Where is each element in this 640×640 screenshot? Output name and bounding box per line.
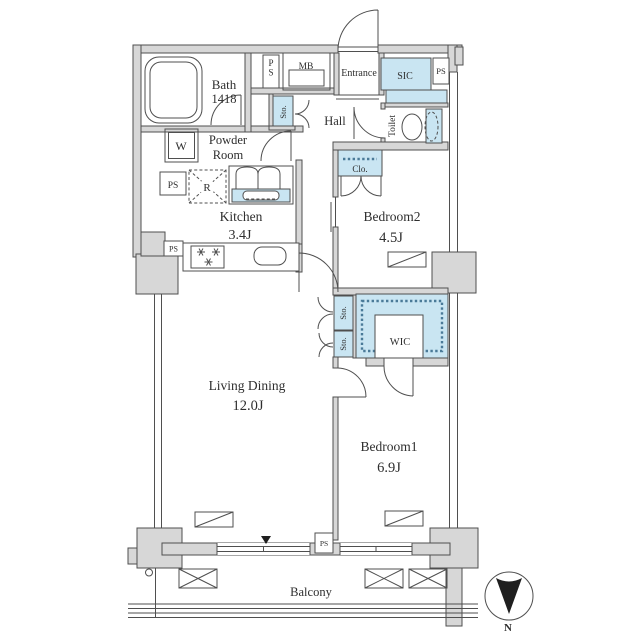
wall-bedroom1-north-b — [413, 358, 448, 366]
bedroom2-size-label: 4.5J — [379, 230, 403, 246]
wall-sto-nook-bottom — [269, 126, 295, 130]
bedroom1-size-label: 6.9J — [377, 460, 401, 476]
sto-stack-bifold-doors — [318, 297, 333, 357]
closet-label: Clo. — [352, 164, 367, 174]
ac-bedroom2-diagonal — [388, 252, 426, 267]
wall-bedroom1-north-a — [366, 358, 384, 366]
powder-room-door — [261, 131, 291, 161]
wall-right-lines — [450, 72, 458, 528]
floor-plan: N Bath 1418 PS MB Entrance SIC PS Sto. H… — [0, 0, 640, 640]
entrance-label: Entrance — [341, 68, 377, 79]
wall-kitchen-left-nook — [141, 232, 165, 256]
wall-hall-northwest — [251, 88, 336, 94]
wall-right-notch — [455, 47, 463, 65]
wall-entrance-left — [334, 53, 339, 95]
living-entry-door — [299, 253, 338, 292]
entrance-door-sill — [338, 47, 378, 52]
washer-label: W — [175, 139, 187, 153]
wall-living-bedroom1 — [333, 397, 338, 540]
bedroom1-door — [338, 368, 366, 397]
ac-living-diagonal — [195, 512, 233, 527]
entrance-step-line — [336, 95, 379, 99]
powder-room-label-1: Powder — [209, 133, 248, 147]
pillar-bottom-left-tab — [128, 548, 137, 564]
ps-top-label: PS — [268, 58, 273, 77]
bath-size-label: 1418 — [212, 92, 237, 106]
wall-bedroom2-west-upper — [333, 150, 338, 197]
balcony-drain — [146, 569, 153, 576]
sic-label: SIC — [397, 71, 413, 82]
sto-hall-doors — [295, 100, 309, 128]
wall-toilet-top — [381, 103, 448, 107]
kitchen-counter — [183, 243, 299, 271]
closet-doors — [341, 176, 381, 196]
compass-north-label: N — [504, 622, 512, 634]
compass: N — [485, 572, 533, 634]
ps-balcony-label: PS — [320, 539, 328, 548]
wall-left-upper — [133, 45, 141, 257]
wall-bath-right — [245, 53, 251, 132]
wall-top-left — [133, 45, 338, 53]
sto-hall-label: Sto. — [278, 105, 288, 118]
wall-left-lower-lines — [155, 294, 162, 528]
pillar-mid-right — [432, 252, 476, 293]
kitchen-size-label: 3.4J — [229, 228, 253, 243]
toilet-bowl — [402, 114, 422, 140]
kitchen-label: Kitchen — [220, 209, 263, 224]
powder-room-label-2: Room — [213, 148, 244, 162]
living-dining-label: Living Dining — [209, 378, 286, 393]
ac-outdoor-unit-2-cross — [365, 569, 403, 588]
bedroom1-label: Bedroom1 — [361, 439, 418, 454]
bath-label: Bath — [212, 77, 237, 92]
wic-door — [384, 366, 413, 396]
living-dining-size-label: 12.0J — [232, 398, 263, 414]
bathtub-inner — [150, 62, 197, 118]
toilet-door — [354, 107, 385, 139]
hall-label: Hall — [324, 114, 346, 128]
toilet-tank-cabinet — [426, 109, 442, 143]
toilet-label: Toilet — [388, 115, 398, 137]
wall-west-stub — [333, 357, 338, 368]
wall-powder-hall — [296, 160, 302, 244]
refrigerator-label: R — [203, 182, 211, 194]
entrance-door — [338, 10, 378, 50]
wic-label: WIC — [390, 337, 410, 348]
meter-box-inner — [289, 70, 324, 86]
wall-sto-nook-left — [269, 94, 273, 130]
wall-toilet-left-upper — [381, 103, 385, 109]
pillar-mid-left — [136, 254, 178, 294]
balcony-railing — [128, 604, 478, 618]
ac-outdoor-unit-3-cross — [409, 569, 447, 588]
ps-powder-label: PS — [168, 181, 179, 191]
bathtub-outer — [145, 57, 202, 123]
bedroom2-label: Bedroom2 — [364, 209, 421, 224]
balcony-label: Balcony — [290, 585, 332, 599]
vanity-mirror-doors — [236, 167, 280, 189]
sto-lower-label: Sto. — [338, 337, 348, 350]
ps-kitchen-label: PS — [169, 245, 178, 254]
ac-outdoor-unit-1-cross — [179, 569, 217, 588]
ac-bedroom1-diagonal — [385, 511, 423, 526]
meter-box-label: MB — [299, 62, 314, 72]
sic-lower-strip — [386, 90, 447, 103]
sto-upper-label: Sto. — [338, 306, 348, 319]
ps-entry-label: PS — [436, 66, 446, 76]
